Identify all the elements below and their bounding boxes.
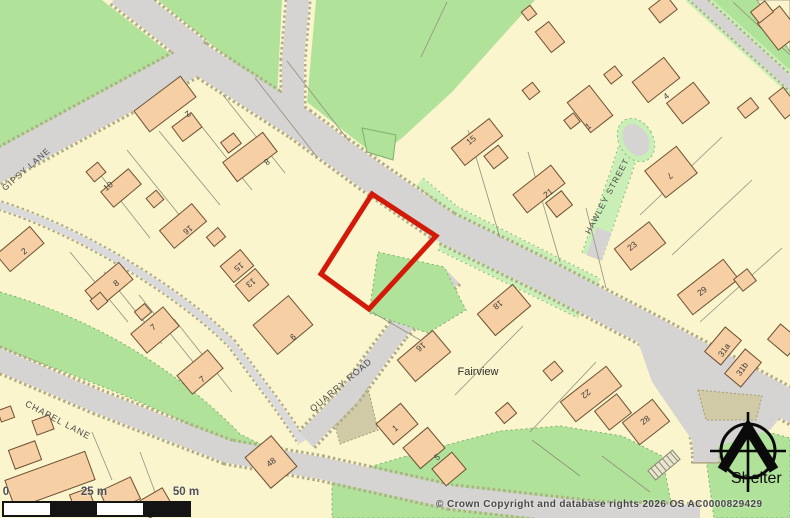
scale-bar-segment	[143, 503, 189, 515]
scale-bar-segment	[4, 503, 50, 515]
scale-bar-segment	[50, 503, 96, 515]
scale-bar	[2, 501, 191, 517]
copyright-attribution: © Crown Copyright and database rights 20…	[436, 499, 762, 510]
map-canvas: GIPSY LANE CHAPEL LANE QUARRY ROAD HAWLE…	[0, 0, 790, 518]
shelter-logo-icon	[702, 404, 790, 496]
scale-bar-segment	[97, 503, 143, 515]
map-image	[0, 0, 790, 518]
